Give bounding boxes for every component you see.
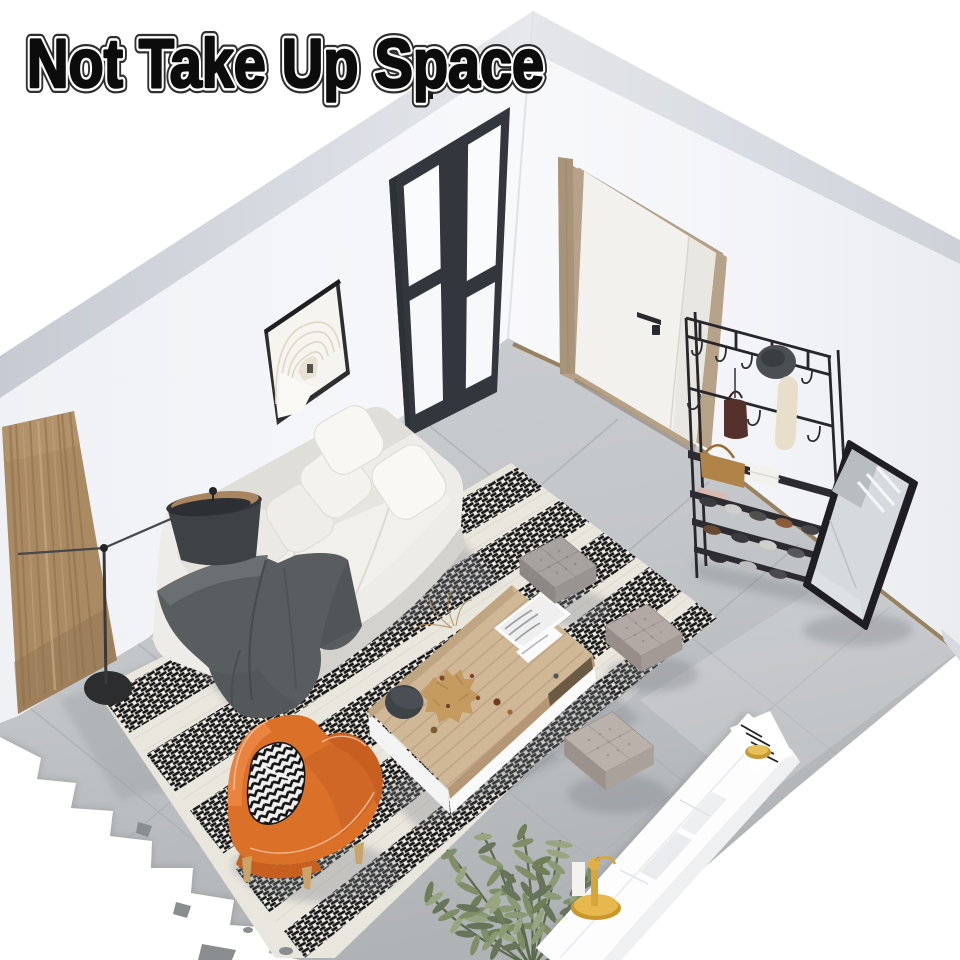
svg-text:Not Take Up Space: Not Take Up Space <box>27 25 544 102</box>
